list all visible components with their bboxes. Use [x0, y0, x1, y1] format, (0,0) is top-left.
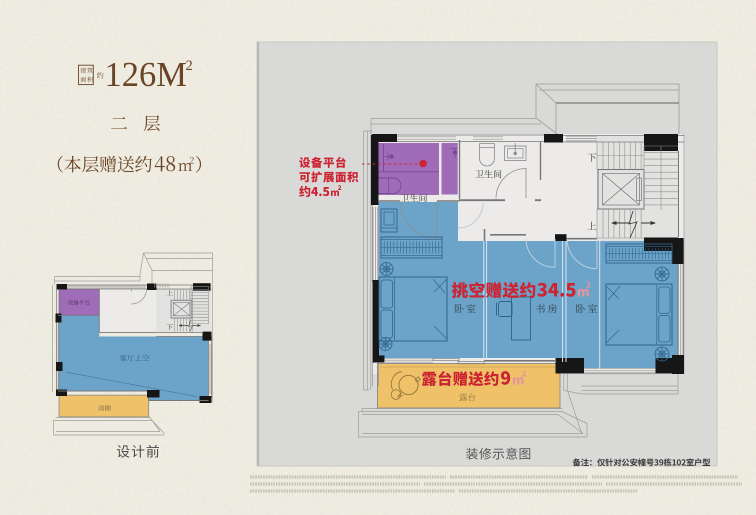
- svg-text:126M: 126M: [105, 56, 187, 94]
- svg-text:2: 2: [186, 58, 193, 74]
